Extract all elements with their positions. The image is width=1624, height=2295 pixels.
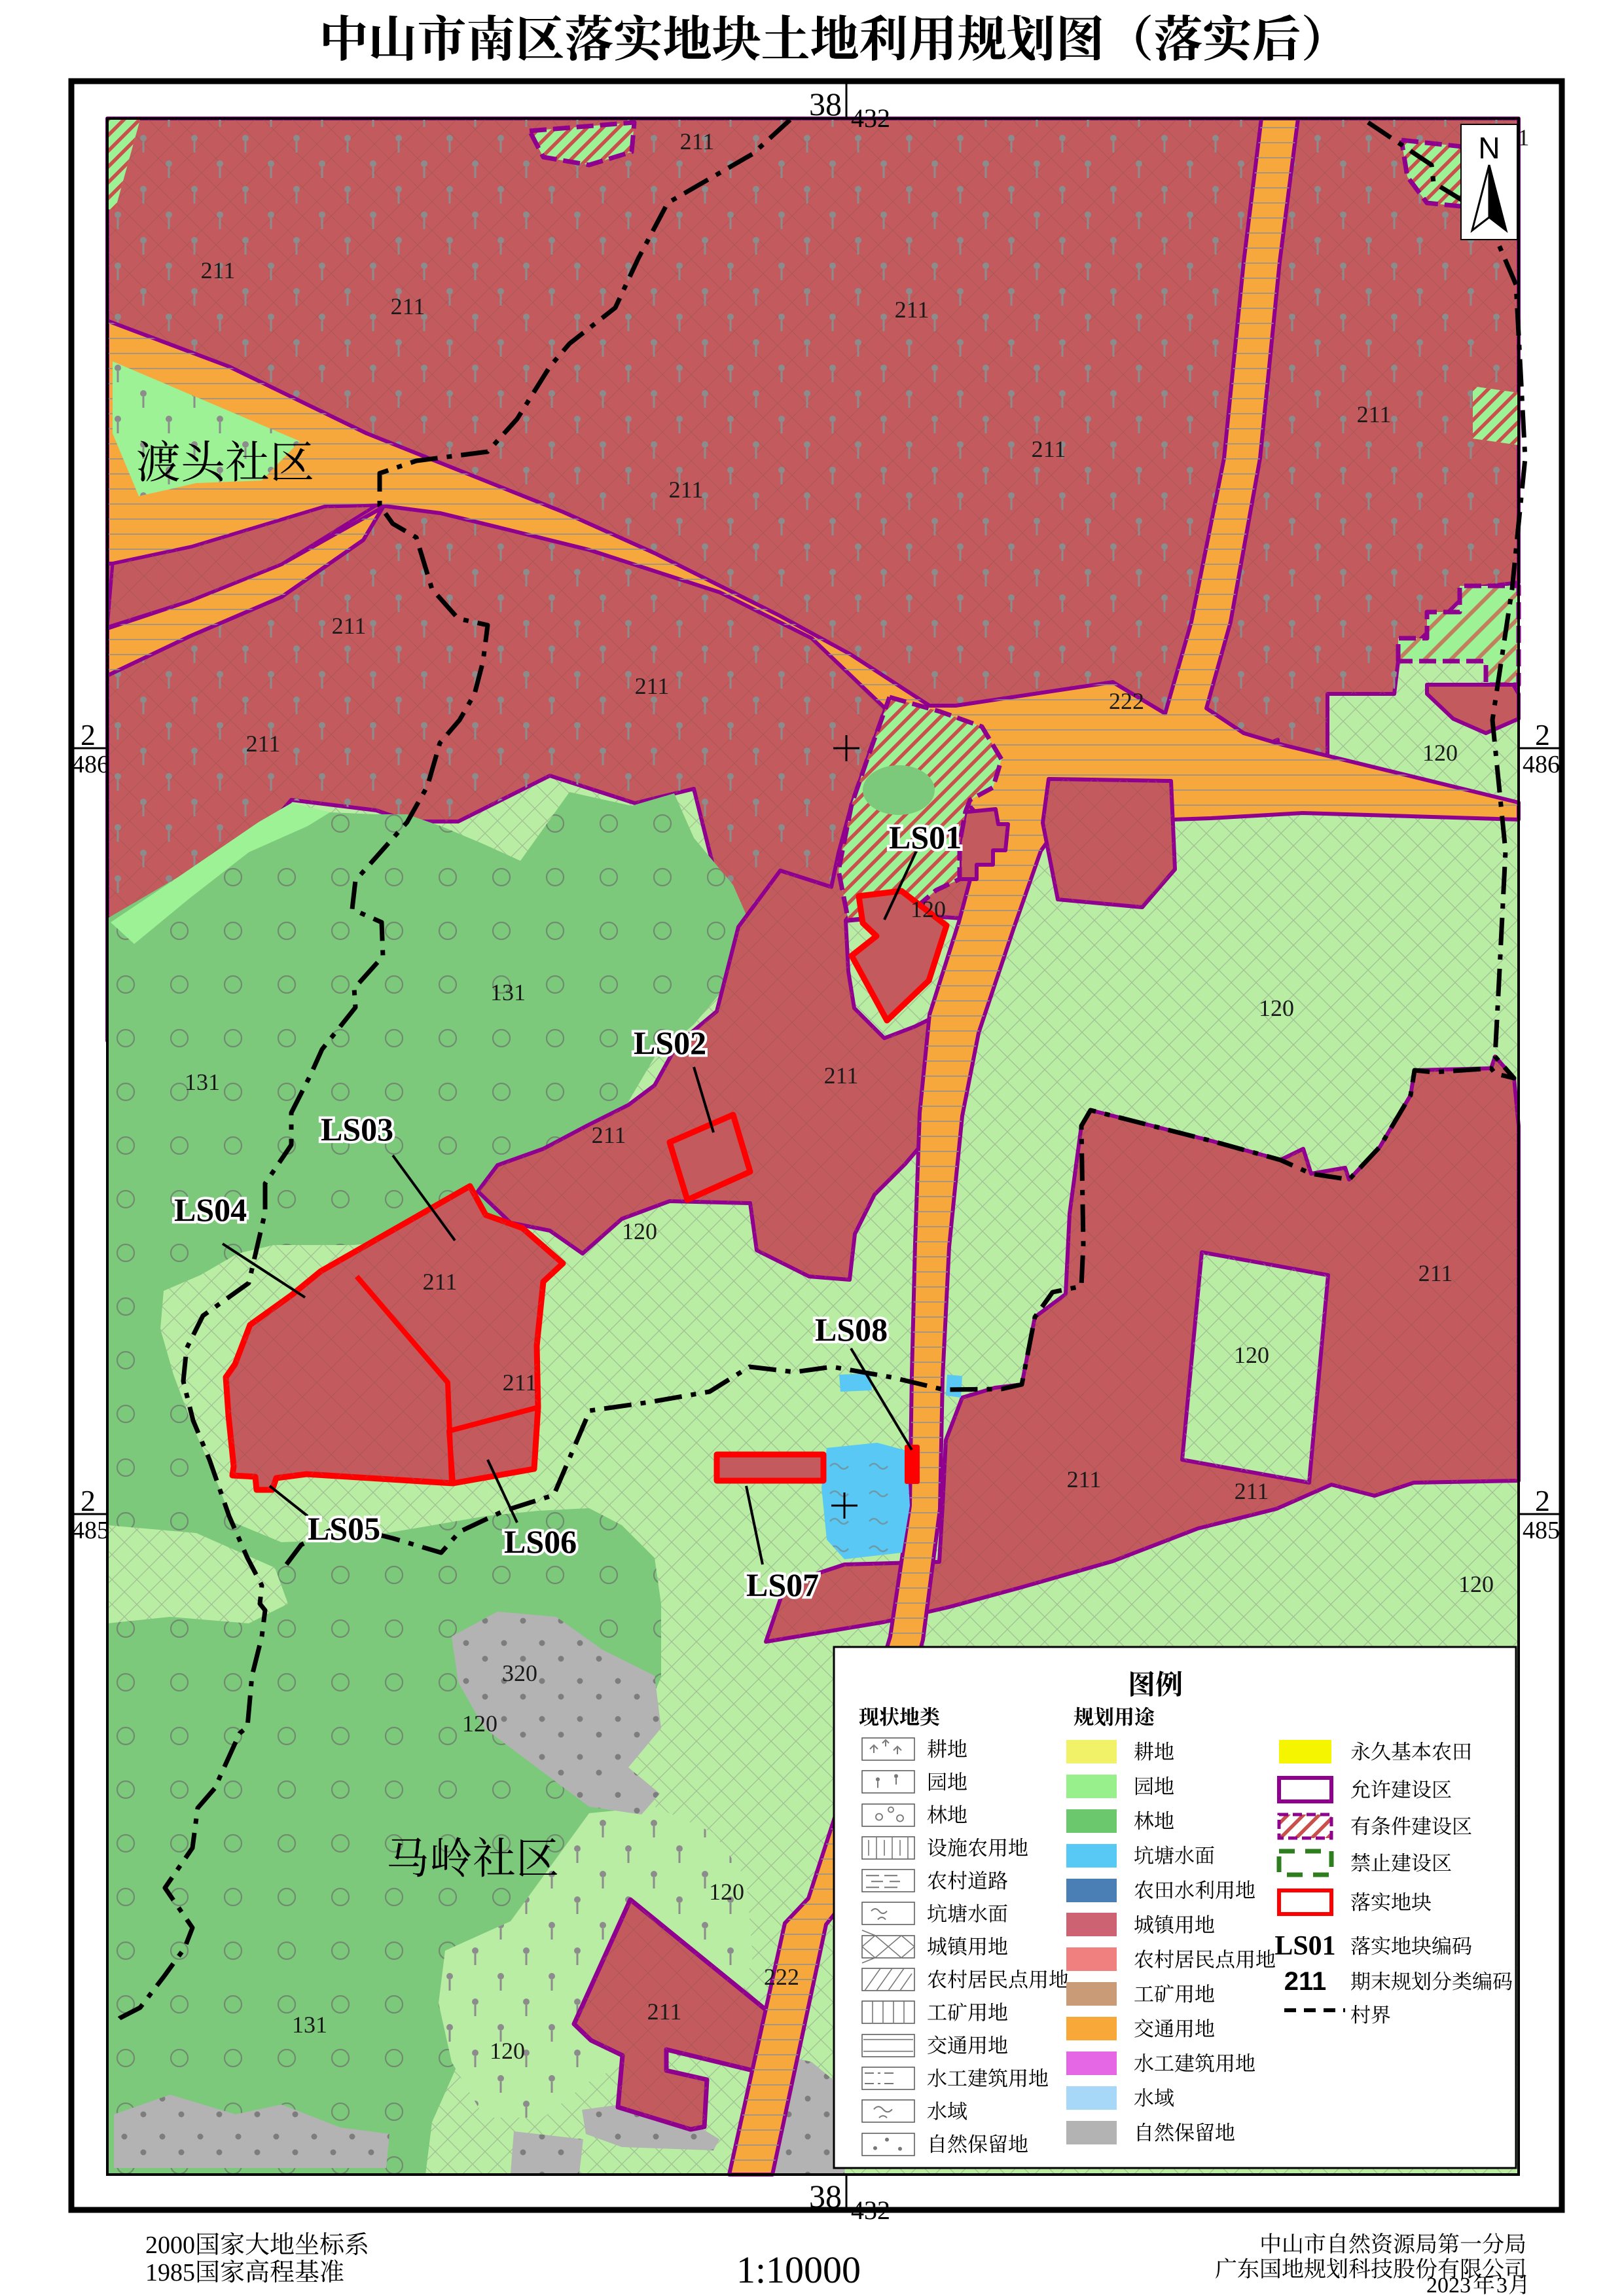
svg-text:211: 211: [1284, 1967, 1327, 1996]
svg-text:LS08: LS08: [815, 1311, 888, 1348]
svg-text:LS03: LS03: [321, 1111, 393, 1147]
svg-text:211: 211: [824, 1062, 859, 1089]
svg-text:432: 432: [851, 2196, 890, 2225]
svg-text:432: 432: [851, 103, 890, 133]
svg-text:131: 131: [185, 1069, 220, 1095]
svg-text:211: 211: [246, 731, 281, 757]
svg-text:120: 120: [1259, 995, 1294, 1021]
svg-text:2: 2: [1535, 1484, 1550, 1517]
svg-text:120: 120: [622, 1218, 657, 1244]
svg-text:120: 120: [1422, 740, 1458, 766]
svg-text:211: 211: [680, 128, 715, 154]
svg-text:LS06: LS06: [504, 1523, 577, 1560]
svg-text:211: 211: [1067, 1466, 1102, 1492]
svg-text:120: 120: [911, 896, 946, 922]
svg-text:211: 211: [1032, 436, 1066, 462]
svg-text:485: 485: [1523, 1517, 1560, 1544]
svg-text:LS02: LS02: [634, 1024, 706, 1061]
svg-text:N: N: [1478, 131, 1500, 165]
svg-text:3: 3: [1496, 2273, 1507, 2295]
svg-text:211: 211: [647, 1998, 682, 2025]
svg-text:2: 2: [81, 718, 96, 751]
svg-text:486: 486: [1523, 751, 1560, 778]
svg-text:211: 211: [1235, 1478, 1269, 1504]
svg-text:211: 211: [391, 293, 425, 319]
svg-text:120: 120: [462, 1710, 497, 1737]
svg-text:1985: 1985: [145, 2259, 195, 2286]
svg-text:2000: 2000: [145, 2232, 195, 2259]
svg-text:2023: 2023: [1426, 2273, 1471, 2295]
svg-text:486: 486: [72, 751, 109, 778]
svg-text:120: 120: [490, 2038, 525, 2064]
svg-text:2: 2: [81, 1484, 96, 1517]
svg-text:LS01: LS01: [889, 819, 962, 856]
svg-text:131: 131: [292, 2012, 327, 2038]
svg-text:120: 120: [709, 1879, 744, 1905]
svg-text:2: 2: [1535, 718, 1550, 751]
svg-text:38: 38: [809, 2178, 842, 2214]
svg-text:120: 120: [1458, 1571, 1494, 1597]
svg-text:131: 131: [490, 979, 526, 1005]
svg-text:211: 211: [201, 257, 236, 283]
svg-text:120: 120: [1234, 1342, 1269, 1368]
svg-text:211: 211: [669, 477, 704, 503]
svg-text:211: 211: [423, 1269, 458, 1295]
svg-text:320: 320: [502, 1660, 537, 1686]
svg-text:LS04: LS04: [174, 1191, 247, 1228]
svg-text:38: 38: [809, 86, 842, 122]
svg-text:222: 222: [764, 1964, 799, 1990]
svg-text:211: 211: [503, 1369, 537, 1396]
svg-text:211: 211: [1418, 1260, 1453, 1286]
svg-text:211: 211: [895, 297, 929, 323]
svg-text:211: 211: [592, 1122, 626, 1148]
svg-text:211: 211: [635, 673, 670, 699]
svg-text:LS01: LS01: [1274, 1931, 1335, 1961]
svg-text:485: 485: [72, 1517, 109, 1544]
svg-text:211: 211: [332, 613, 367, 639]
svg-text:1:10000: 1:10000: [736, 2249, 861, 2291]
svg-text:222: 222: [1109, 688, 1144, 714]
svg-text:211: 211: [1357, 401, 1392, 427]
svg-text:LS05: LS05: [308, 1510, 380, 1547]
svg-text:LS07: LS07: [746, 1566, 819, 1603]
